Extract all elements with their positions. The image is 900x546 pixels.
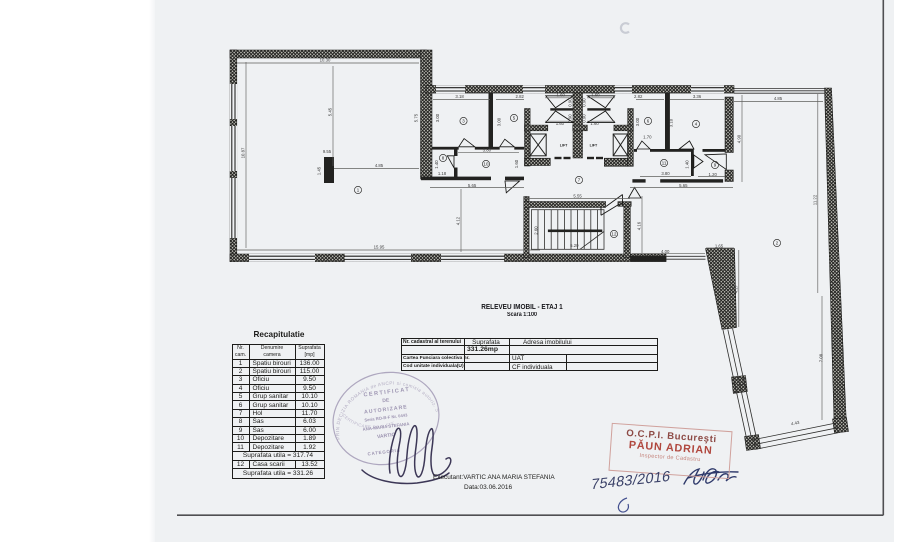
svg-text:9.55: 9.55 — [323, 149, 332, 154]
svg-text:2.82: 2.82 — [516, 94, 525, 99]
svg-text:4: 4 — [695, 122, 698, 127]
svg-text:1.60: 1.60 — [591, 93, 600, 98]
svg-text:LIFT: LIFT — [560, 144, 568, 148]
svg-text:3.80: 3.80 — [661, 171, 670, 176]
svg-text:DE: DE — [382, 397, 390, 404]
svg-text:1.18: 1.18 — [438, 171, 447, 176]
svg-text:5.65: 5.65 — [679, 183, 688, 188]
svg-text:1.40: 1.40 — [434, 160, 439, 169]
svg-text:5.55: 5.55 — [573, 194, 582, 199]
svg-text:2.60: 2.60 — [534, 226, 539, 235]
svg-text:3.18: 3.18 — [455, 94, 464, 99]
svg-text:15.95: 15.95 — [374, 245, 385, 250]
svg-text:1.60: 1.60 — [514, 159, 519, 168]
svg-text:ANA-MARIA STEFANIA: ANA-MARIA STEFANIA — [362, 421, 409, 432]
svg-text:8: 8 — [442, 156, 445, 161]
svg-text:3.10: 3.10 — [669, 118, 674, 127]
svg-text:5.65: 5.65 — [468, 183, 477, 188]
svg-text:2: 2 — [776, 241, 779, 246]
svg-text:3.00: 3.00 — [497, 117, 502, 126]
svg-text:LIFT: LIFT — [590, 144, 598, 148]
svg-text:5.20: 5.20 — [570, 243, 579, 248]
svg-text:4.85: 4.85 — [375, 163, 384, 168]
svg-text:CATEGORIA: CATEGORIA — [367, 447, 401, 456]
svg-text:4.90: 4.90 — [737, 134, 742, 143]
svg-text:12: 12 — [612, 232, 617, 237]
svg-text:11.22: 11.22 — [813, 194, 818, 205]
svg-text:5.75: 5.75 — [413, 113, 418, 122]
svg-text:5: 5 — [513, 116, 516, 121]
svg-text:11: 11 — [662, 161, 667, 166]
svg-text:1.20: 1.20 — [709, 172, 718, 177]
svg-text:4.16: 4.16 — [636, 221, 641, 230]
svg-text:6: 6 — [647, 119, 650, 124]
svg-text:10: 10 — [484, 162, 489, 167]
svg-text:1.65: 1.65 — [715, 243, 724, 248]
svg-text:4.43: 4.43 — [791, 420, 801, 427]
svg-text:0.90: 0.90 — [581, 98, 586, 107]
svg-text:4.12: 4.12 — [456, 216, 461, 225]
svg-text:3: 3 — [462, 119, 465, 124]
svg-text:5.45: 5.45 — [328, 107, 333, 116]
svg-text:7.08: 7.08 — [819, 353, 824, 362]
svg-text:1.40: 1.40 — [685, 160, 690, 169]
svg-text:1.70: 1.70 — [643, 134, 652, 139]
svg-text:2.82: 2.82 — [634, 94, 643, 99]
svg-text:1.60: 1.60 — [557, 93, 566, 98]
svg-text:7: 7 — [578, 178, 581, 183]
svg-text:1: 1 — [357, 188, 360, 193]
svg-text:3.36: 3.36 — [693, 94, 702, 99]
svg-text:0.90: 0.90 — [568, 98, 573, 107]
svg-text:0.90: 0.90 — [568, 114, 573, 123]
svg-text:3.00: 3.00 — [635, 117, 640, 126]
svg-text:3.00: 3.00 — [435, 113, 440, 122]
svg-text:4.85: 4.85 — [774, 96, 783, 101]
svg-text:10.87: 10.87 — [241, 147, 246, 158]
svg-text:9: 9 — [714, 163, 717, 168]
svg-text:4.00: 4.00 — [661, 249, 670, 254]
svg-text:10.30: 10.30 — [320, 58, 331, 63]
svg-text:1.45: 1.45 — [317, 166, 322, 175]
svg-text:1.60: 1.60 — [556, 121, 565, 126]
svg-text:1.60: 1.60 — [590, 121, 599, 126]
svg-text:0.90: 0.90 — [581, 114, 586, 123]
svg-text:3.80: 3.80 — [483, 148, 492, 153]
svg-text:4.27: 4.27 — [733, 284, 738, 293]
